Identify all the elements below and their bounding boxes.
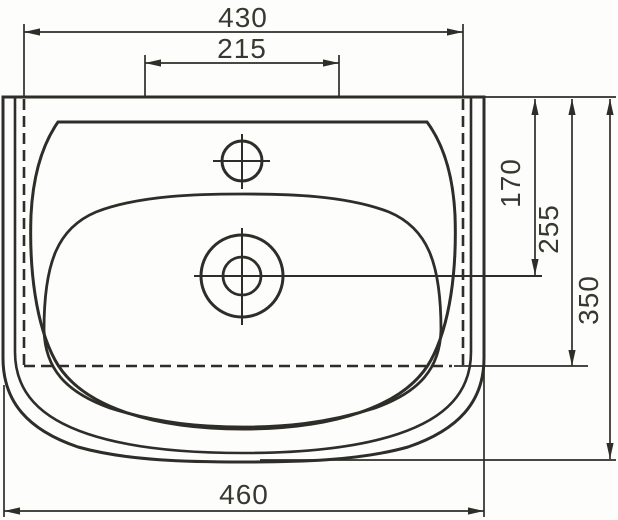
arrow-255-bottom <box>568 350 575 366</box>
drawing-svg: 430 215 460 170 255 350 <box>0 0 618 520</box>
dim-label-right-overall: 350 <box>573 275 604 325</box>
dim-label-right-inner: 170 <box>495 158 526 208</box>
dimension-arrowheads <box>4 28 614 514</box>
arrow-350-bottom <box>606 443 613 459</box>
arrow-460-left <box>4 507 20 514</box>
faucet-hole-crosshair <box>213 134 270 189</box>
arrow-255-top <box>568 99 575 115</box>
dim-label-top-outer: 430 <box>218 2 268 33</box>
arrow-430-left <box>24 28 40 35</box>
arrow-170-top <box>531 99 538 115</box>
arrow-215-left <box>145 59 161 66</box>
dim-label-bottom-overall: 460 <box>219 479 269 510</box>
dim-label-right-middle: 255 <box>533 204 564 254</box>
dimension-labels: 430 215 460 170 255 350 <box>217 2 604 510</box>
arrow-430-right <box>447 28 463 35</box>
arrow-170-bottom <box>531 259 538 275</box>
arrow-460-right <box>468 507 484 514</box>
sink-outlines <box>3 97 484 462</box>
arrow-215-right <box>323 59 339 66</box>
sink-outer-contour <box>3 97 484 462</box>
dim-label-top-inner: 215 <box>217 33 267 64</box>
washbasin-technical-drawing: 430 215 460 170 255 350 <box>0 0 618 520</box>
arrow-350-top <box>606 99 613 115</box>
